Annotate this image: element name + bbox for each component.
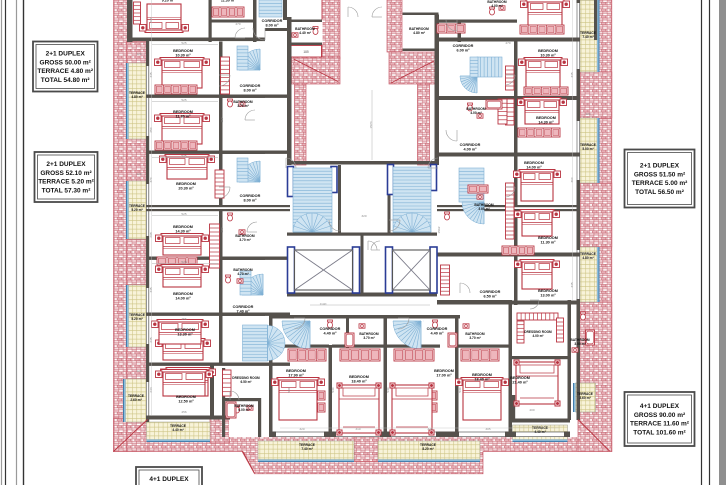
svg-text:4.40 m²: 4.40 m² xyxy=(534,430,546,434)
svg-text:10.30 m²: 10.30 m² xyxy=(175,54,191,58)
svg-text:12.50 m²: 12.50 m² xyxy=(178,400,194,404)
svg-text:4.70 m²: 4.70 m² xyxy=(237,272,249,276)
svg-text:4.00 m²: 4.00 m² xyxy=(491,4,503,8)
svg-text:260: 260 xyxy=(149,17,153,22)
svg-text:345: 345 xyxy=(570,282,574,287)
svg-text:3.70 m²: 3.70 m² xyxy=(469,336,481,340)
svg-text:4.40 m²: 4.40 m² xyxy=(172,428,184,432)
svg-text:BEDROOM: BEDROOM xyxy=(472,373,492,377)
svg-text:BEDROOM: BEDROOM xyxy=(538,236,558,240)
svg-text:TOTAL 54.80 m²: TOTAL 54.80 m² xyxy=(41,77,91,84)
svg-text:530: 530 xyxy=(287,387,291,392)
svg-text:360: 360 xyxy=(570,177,574,182)
svg-text:CORRIDOR: CORRIDOR xyxy=(240,84,261,88)
svg-text:BEDROOM: BEDROOM xyxy=(434,369,454,373)
svg-text:BEDROOM: BEDROOM xyxy=(536,116,556,120)
svg-text:GROSS 52.10 m²: GROSS 52.10 m² xyxy=(40,170,92,177)
svg-text:TERRACE 5.20 m²: TERRACE 5.20 m² xyxy=(38,179,94,186)
svg-text:TOTAL 56.50 m²: TOTAL 56.50 m² xyxy=(635,189,685,196)
svg-text:9.20 m²: 9.20 m² xyxy=(162,0,175,3)
svg-text:18.40 m²: 18.40 m² xyxy=(351,380,367,384)
svg-text:5.20 m²: 5.20 m² xyxy=(131,208,143,212)
svg-text:4.00 m²: 4.00 m² xyxy=(463,148,477,152)
svg-text:120: 120 xyxy=(136,52,141,56)
svg-text:BEDROOM: BEDROOM xyxy=(286,369,306,373)
svg-text:CORRIDOR: CORRIDOR xyxy=(460,143,481,147)
svg-text:6.00 m²: 6.00 m² xyxy=(456,49,470,53)
svg-text:CORRIDOR: CORRIDOR xyxy=(453,44,474,48)
svg-text:345: 345 xyxy=(149,287,153,292)
svg-text:BEDROOM: BEDROOM xyxy=(538,49,558,53)
svg-text:4.80 m²: 4.80 m² xyxy=(413,31,426,35)
svg-text:4.80 m²: 4.80 m² xyxy=(131,95,143,99)
svg-text:3.60 m²: 3.60 m² xyxy=(579,396,591,400)
svg-text:20.30 m²: 20.30 m² xyxy=(178,187,194,191)
svg-text:120: 120 xyxy=(585,112,590,116)
svg-text:13.00 m²: 13.00 m² xyxy=(540,294,556,298)
svg-text:BEDROOM: BEDROOM xyxy=(173,110,193,114)
svg-text:345: 345 xyxy=(570,72,574,77)
svg-text:6.50 m²: 6.50 m² xyxy=(241,380,252,384)
svg-text:CORRIDOR: CORRIDOR xyxy=(320,327,341,331)
svg-text:6.50 m²: 6.50 m² xyxy=(483,295,497,299)
svg-text:14.30 m²: 14.30 m² xyxy=(175,230,191,234)
svg-text:305: 305 xyxy=(485,427,490,431)
svg-text:1562: 1562 xyxy=(437,226,441,233)
svg-text:4.40 m²: 4.40 m² xyxy=(299,31,312,35)
svg-text:8.20 m²: 8.20 m² xyxy=(422,447,434,451)
svg-text:CORRIDOR: CORRIDOR xyxy=(427,327,448,331)
svg-text:GROSS 51.50 m²: GROSS 51.50 m² xyxy=(634,171,686,178)
svg-text:TOTAL 57.30 m²: TOTAL 57.30 m² xyxy=(42,188,92,195)
svg-text:310: 310 xyxy=(355,427,360,431)
svg-text:3.70 m²: 3.70 m² xyxy=(237,104,249,108)
svg-text:400: 400 xyxy=(529,408,534,412)
svg-text:14.30 m²: 14.30 m² xyxy=(538,121,554,125)
svg-text:11.20 m²: 11.20 m² xyxy=(176,115,192,119)
svg-text:17.90 m²: 17.90 m² xyxy=(288,374,304,378)
svg-text:13.30 m²: 13.30 m² xyxy=(177,333,193,337)
svg-text:320: 320 xyxy=(427,427,432,431)
svg-text:TOTAL 101.60 m²: TOTAL 101.60 m² xyxy=(633,430,686,437)
svg-text:CORRIDOR: CORRIDOR xyxy=(480,290,501,294)
svg-text:5.00 m²: 5.00 m² xyxy=(582,147,594,151)
svg-text:8.00 m²: 8.00 m² xyxy=(265,24,279,28)
svg-text:3.00 m²: 3.00 m² xyxy=(478,207,490,211)
svg-text:320: 320 xyxy=(361,214,366,218)
svg-text:BEDROOM: BEDROOM xyxy=(176,395,196,399)
svg-text:BEDROOM: BEDROOM xyxy=(173,225,193,229)
svg-text:17.00 m²: 17.00 m² xyxy=(436,374,452,378)
svg-text:2.60 m²: 2.60 m² xyxy=(130,398,142,402)
svg-text:2+1 DUPLEX: 2+1 DUPLEX xyxy=(46,161,86,168)
svg-text:3.70 m²: 3.70 m² xyxy=(363,336,375,340)
svg-text:456: 456 xyxy=(181,317,186,321)
svg-text:3.70 m²: 3.70 m² xyxy=(239,238,251,242)
svg-text:243: 243 xyxy=(149,387,153,392)
svg-text:530: 530 xyxy=(331,387,335,392)
svg-text:11.30 m²: 11.30 m² xyxy=(541,241,557,245)
svg-text:14.00 m²: 14.00 m² xyxy=(175,297,191,301)
svg-text:320: 320 xyxy=(299,427,304,431)
svg-text:3.50 m²: 3.50 m² xyxy=(574,342,586,346)
svg-text:BEDROOM: BEDROOM xyxy=(524,161,544,165)
svg-text:CORRIDOR: CORRIDOR xyxy=(233,305,254,309)
svg-text:GROSS 50.00 m²: GROSS 50.00 m² xyxy=(40,59,92,66)
svg-text:530: 530 xyxy=(458,387,462,392)
svg-text:TERRACE 5.00 m²: TERRACE 5.00 m² xyxy=(632,180,688,187)
svg-text:6.00 m²: 6.00 m² xyxy=(238,408,250,412)
svg-text:CORRIDOR: CORRIDOR xyxy=(262,19,283,23)
svg-text:BEDROOM: BEDROOM xyxy=(173,292,193,296)
svg-text:BEDROOM: BEDROOM xyxy=(538,289,558,293)
svg-text:18.40 m²: 18.40 m² xyxy=(474,378,490,382)
svg-text:BEDROOM: BEDROOM xyxy=(175,328,195,332)
svg-text:2+1 DUPLEX: 2+1 DUPLEX xyxy=(640,162,680,169)
svg-text:BEDROOM: BEDROOM xyxy=(349,375,369,379)
svg-text:4.00 m²: 4.00 m² xyxy=(470,111,482,115)
svg-text:470: 470 xyxy=(505,41,510,45)
svg-text:185: 185 xyxy=(303,50,309,54)
svg-text:298: 298 xyxy=(149,232,153,237)
svg-text:4.00 m²: 4.00 m² xyxy=(533,334,544,338)
svg-text:10.30 m²: 10.30 m² xyxy=(540,54,556,58)
svg-text:245: 245 xyxy=(149,337,153,342)
svg-text:4+1 DUPLEX: 4+1 DUPLEX xyxy=(149,476,189,483)
svg-text:TERRACE 11.60 m²: TERRACE 11.60 m² xyxy=(630,421,690,428)
svg-text:7.40 m²: 7.40 m² xyxy=(301,447,313,451)
svg-text:4.80 m²: 4.80 m² xyxy=(582,256,594,260)
svg-text:8.00 m²: 8.00 m² xyxy=(243,89,257,93)
svg-text:345: 345 xyxy=(149,72,153,77)
svg-text:4.40 m²: 4.40 m² xyxy=(323,332,337,336)
svg-text:BEDROOM: BEDROOM xyxy=(510,376,530,380)
svg-text:4+1 DUPLEX: 4+1 DUPLEX xyxy=(640,403,680,410)
svg-text:CORRIDOR: CORRIDOR xyxy=(240,194,261,198)
svg-text:7.40 m²: 7.40 m² xyxy=(236,310,250,314)
svg-text:120: 120 xyxy=(136,172,141,176)
svg-text:BEDROOM: BEDROOM xyxy=(176,182,196,186)
svg-text:11.30 m²: 11.30 m² xyxy=(221,0,236,3)
svg-text:1140: 1140 xyxy=(320,302,327,306)
svg-text:4.40 m²: 4.40 m² xyxy=(430,332,444,336)
svg-text:8.00 m²: 8.00 m² xyxy=(243,199,257,203)
svg-text:2+1 DUPLEX: 2+1 DUPLEX xyxy=(46,50,86,57)
svg-text:120: 120 xyxy=(136,369,141,373)
svg-text:21.40 m²: 21.40 m² xyxy=(512,381,528,385)
svg-text:470: 470 xyxy=(235,22,240,26)
svg-text:1570: 1570 xyxy=(369,121,373,128)
svg-text:GROSS 90.00 m²: GROSS 90.00 m² xyxy=(634,412,686,419)
svg-text:456: 456 xyxy=(181,410,186,414)
svg-text:BEDROOM: BEDROOM xyxy=(173,49,193,53)
svg-text:TERRACE 4.80 m²: TERRACE 4.80 m² xyxy=(37,68,93,75)
svg-text:14.00 m²: 14.00 m² xyxy=(526,166,542,170)
svg-text:5.20 m²: 5.20 m² xyxy=(131,317,143,321)
svg-text:7.40 m²: 7.40 m² xyxy=(582,35,594,39)
svg-text:130: 130 xyxy=(220,227,224,232)
svg-text:110: 110 xyxy=(220,117,224,122)
svg-text:370: 370 xyxy=(149,177,153,182)
svg-text:250: 250 xyxy=(149,127,153,132)
svg-text:530: 530 xyxy=(386,387,390,392)
